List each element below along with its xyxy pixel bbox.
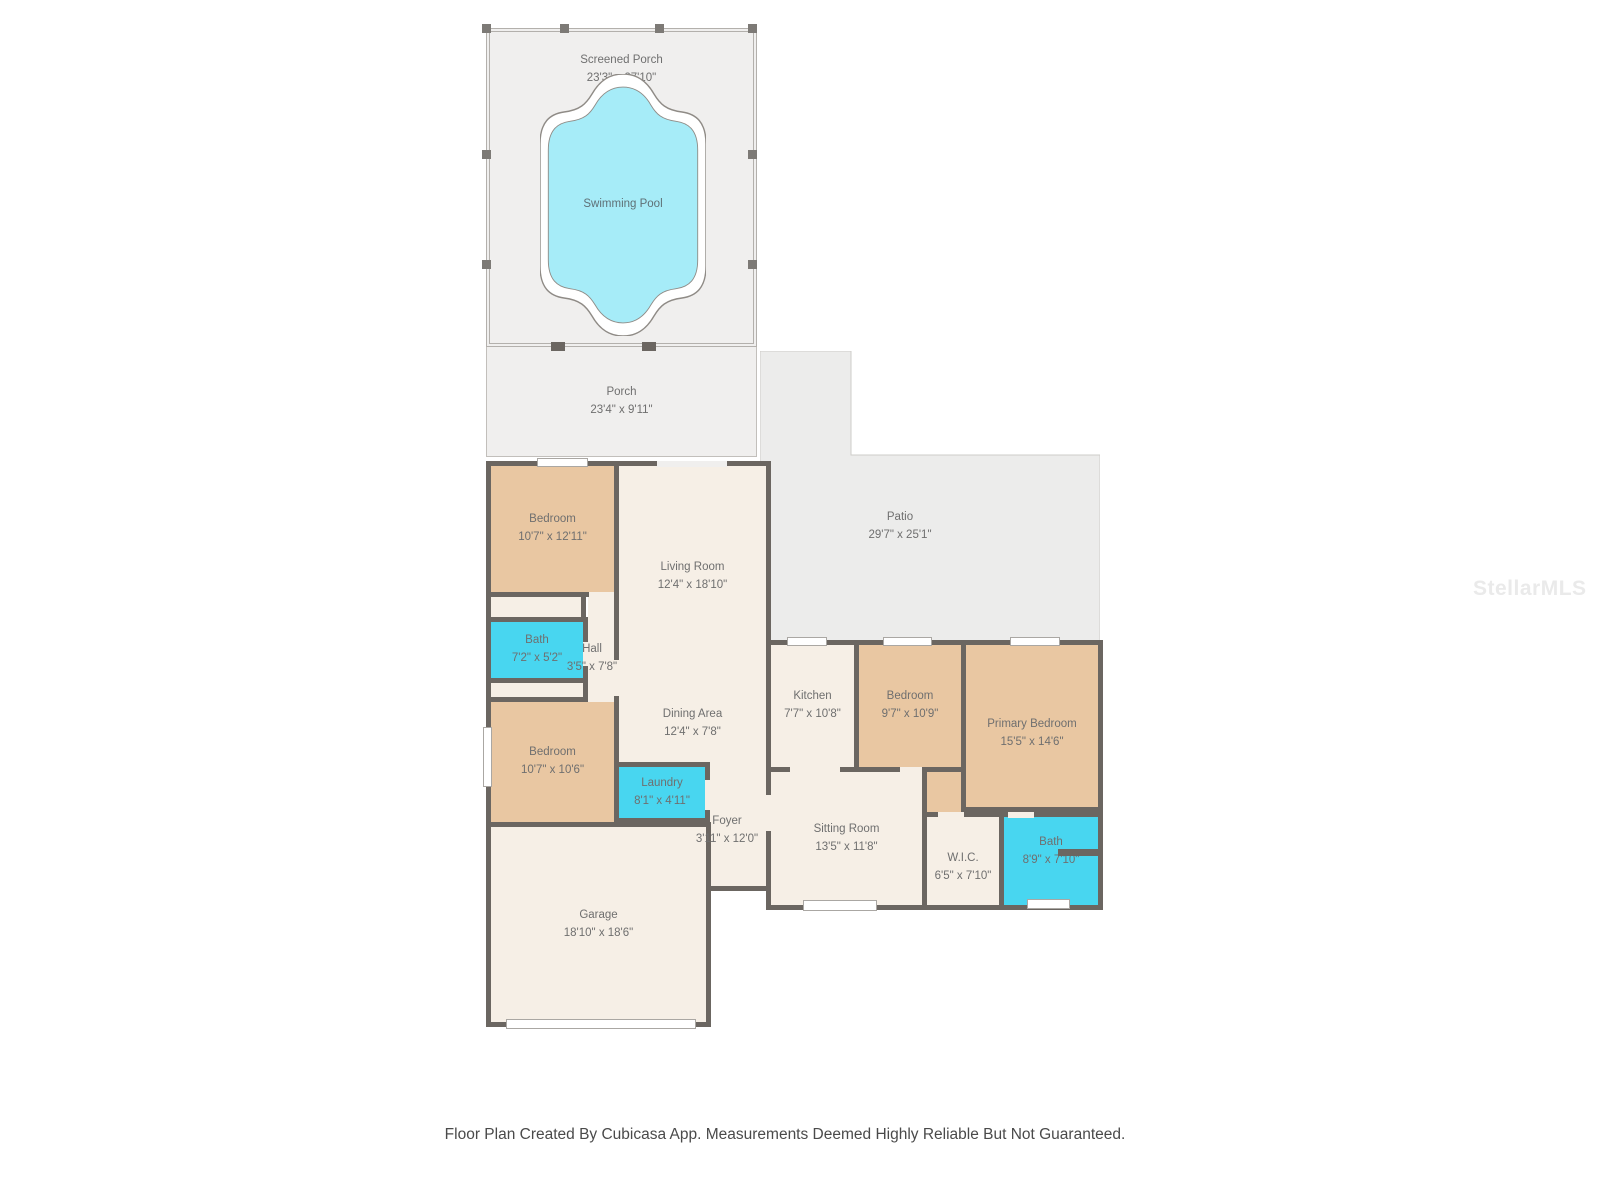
room-dims: 10'7" x 10'6" xyxy=(521,762,584,780)
room-dims: 23'4" x 9'11" xyxy=(590,402,652,420)
window xyxy=(1010,637,1060,646)
dining-area-label: Dining Area 12'4" x 7'8" xyxy=(619,706,766,742)
entry-door xyxy=(803,900,877,911)
screen-post xyxy=(655,24,664,33)
window xyxy=(537,458,588,467)
window xyxy=(1027,899,1070,909)
door-opening xyxy=(900,767,922,773)
room-name: Laundry xyxy=(641,775,683,793)
porch-junction-post xyxy=(551,342,565,351)
room-porch: Porch 23'4" x 9'11" xyxy=(486,346,757,457)
hall-area xyxy=(588,597,614,702)
room-name: Bedroom xyxy=(887,688,934,706)
room-name: Porch xyxy=(606,384,636,402)
room-dims: 13'5" x 11'8" xyxy=(815,839,877,857)
room-kitchen: Kitchen 7'7" x 10'8" xyxy=(766,640,859,772)
room-name: Swimming Pool xyxy=(583,196,662,214)
room-dims: 7'2" x 5'2" xyxy=(512,650,562,668)
room-name: Sitting Room xyxy=(814,821,880,839)
room-name: Garage xyxy=(579,907,617,925)
door-opening xyxy=(657,461,727,467)
door-opening xyxy=(705,780,711,810)
room-bath-1: Bath 7'2" x 5'2" xyxy=(486,617,588,683)
room-dims: 18'10" x 18'6" xyxy=(564,925,633,943)
room-sitting-room: Sitting Room 13'5" x 11'8" xyxy=(766,767,927,910)
wall-stub-bath2 xyxy=(1058,849,1103,856)
door-opening xyxy=(614,660,620,696)
room-bedroom-2: Bedroom 10'7" x 10'6" xyxy=(486,697,619,827)
door-opening xyxy=(766,795,772,831)
room-name: Bedroom xyxy=(529,744,576,762)
room-name: W.I.C. xyxy=(947,850,978,868)
floor-plan-page: Patio 29'7" x 25'1" Porch 23'4" x 9'11" … xyxy=(0,0,1600,1200)
living-room-label: Living Room 12'4" x 18'10" xyxy=(619,559,766,595)
screen-post xyxy=(482,24,491,33)
door-opening xyxy=(1008,812,1034,818)
room-name: Screened Porch xyxy=(580,52,662,70)
room-laundry: Laundry 8'1" x 4'11" xyxy=(614,762,710,823)
door-opening xyxy=(589,592,614,598)
room-bedroom-3: Bedroom 9'7" x 10'9" xyxy=(854,640,966,772)
room-primary-bedroom: Primary Bedroom 15'5" x 14'6" xyxy=(961,640,1103,812)
room-name: Dining Area xyxy=(663,706,722,724)
door-opening xyxy=(583,642,589,666)
window xyxy=(883,637,932,646)
window xyxy=(483,727,492,787)
room-name: Living Room xyxy=(661,559,725,577)
room-dims: 10'7" x 12'11" xyxy=(518,529,587,547)
porch-junction-post xyxy=(642,342,656,351)
room-name: Kitchen xyxy=(793,688,831,706)
room-dims: 9'7" x 10'9" xyxy=(882,706,939,724)
window xyxy=(787,637,827,646)
room-dims: 8'1" x 4'11" xyxy=(634,793,690,811)
screen-post xyxy=(482,260,491,269)
primary-bedroom-extension xyxy=(922,767,966,817)
room-dims: 15'5" x 14'6" xyxy=(1000,734,1063,752)
screen-post xyxy=(748,150,757,159)
room-name: Bath xyxy=(525,632,549,650)
door-opening xyxy=(790,767,840,773)
screen-post xyxy=(482,150,491,159)
swimming-pool-label-box: Swimming Pool xyxy=(540,74,706,336)
footer-disclaimer: Floor Plan Created By Cubicasa App. Meas… xyxy=(0,1126,1570,1144)
room-name: Bedroom xyxy=(529,511,576,529)
screen-post xyxy=(748,24,757,33)
room-wic: W.I.C. 6'5" x 7'10" xyxy=(922,812,1004,910)
room-garage: Garage 18'10" x 18'6" xyxy=(486,822,711,1027)
door-opening xyxy=(938,812,964,818)
room-dims: 12'4" x 18'10" xyxy=(658,577,727,595)
garage-door xyxy=(506,1019,696,1029)
screen-post xyxy=(560,24,569,33)
room-name: Primary Bedroom xyxy=(987,716,1076,734)
room-dims: 6'5" x 7'10" xyxy=(935,868,992,886)
room-dims: 12'4" x 7'8" xyxy=(664,724,721,742)
stellar-mls-watermark: StellarMLS xyxy=(1473,577,1587,601)
patio-outline xyxy=(760,351,1100,645)
room-dims: 7'7" x 10'8" xyxy=(784,706,841,724)
room-bedroom-1: Bedroom 10'7" x 12'11" xyxy=(486,461,619,597)
porch-label: Porch 23'4" x 9'11" xyxy=(590,384,652,420)
screen-post xyxy=(748,260,757,269)
room-bath-2: Bath 8'9" x 7'10" xyxy=(999,812,1103,910)
